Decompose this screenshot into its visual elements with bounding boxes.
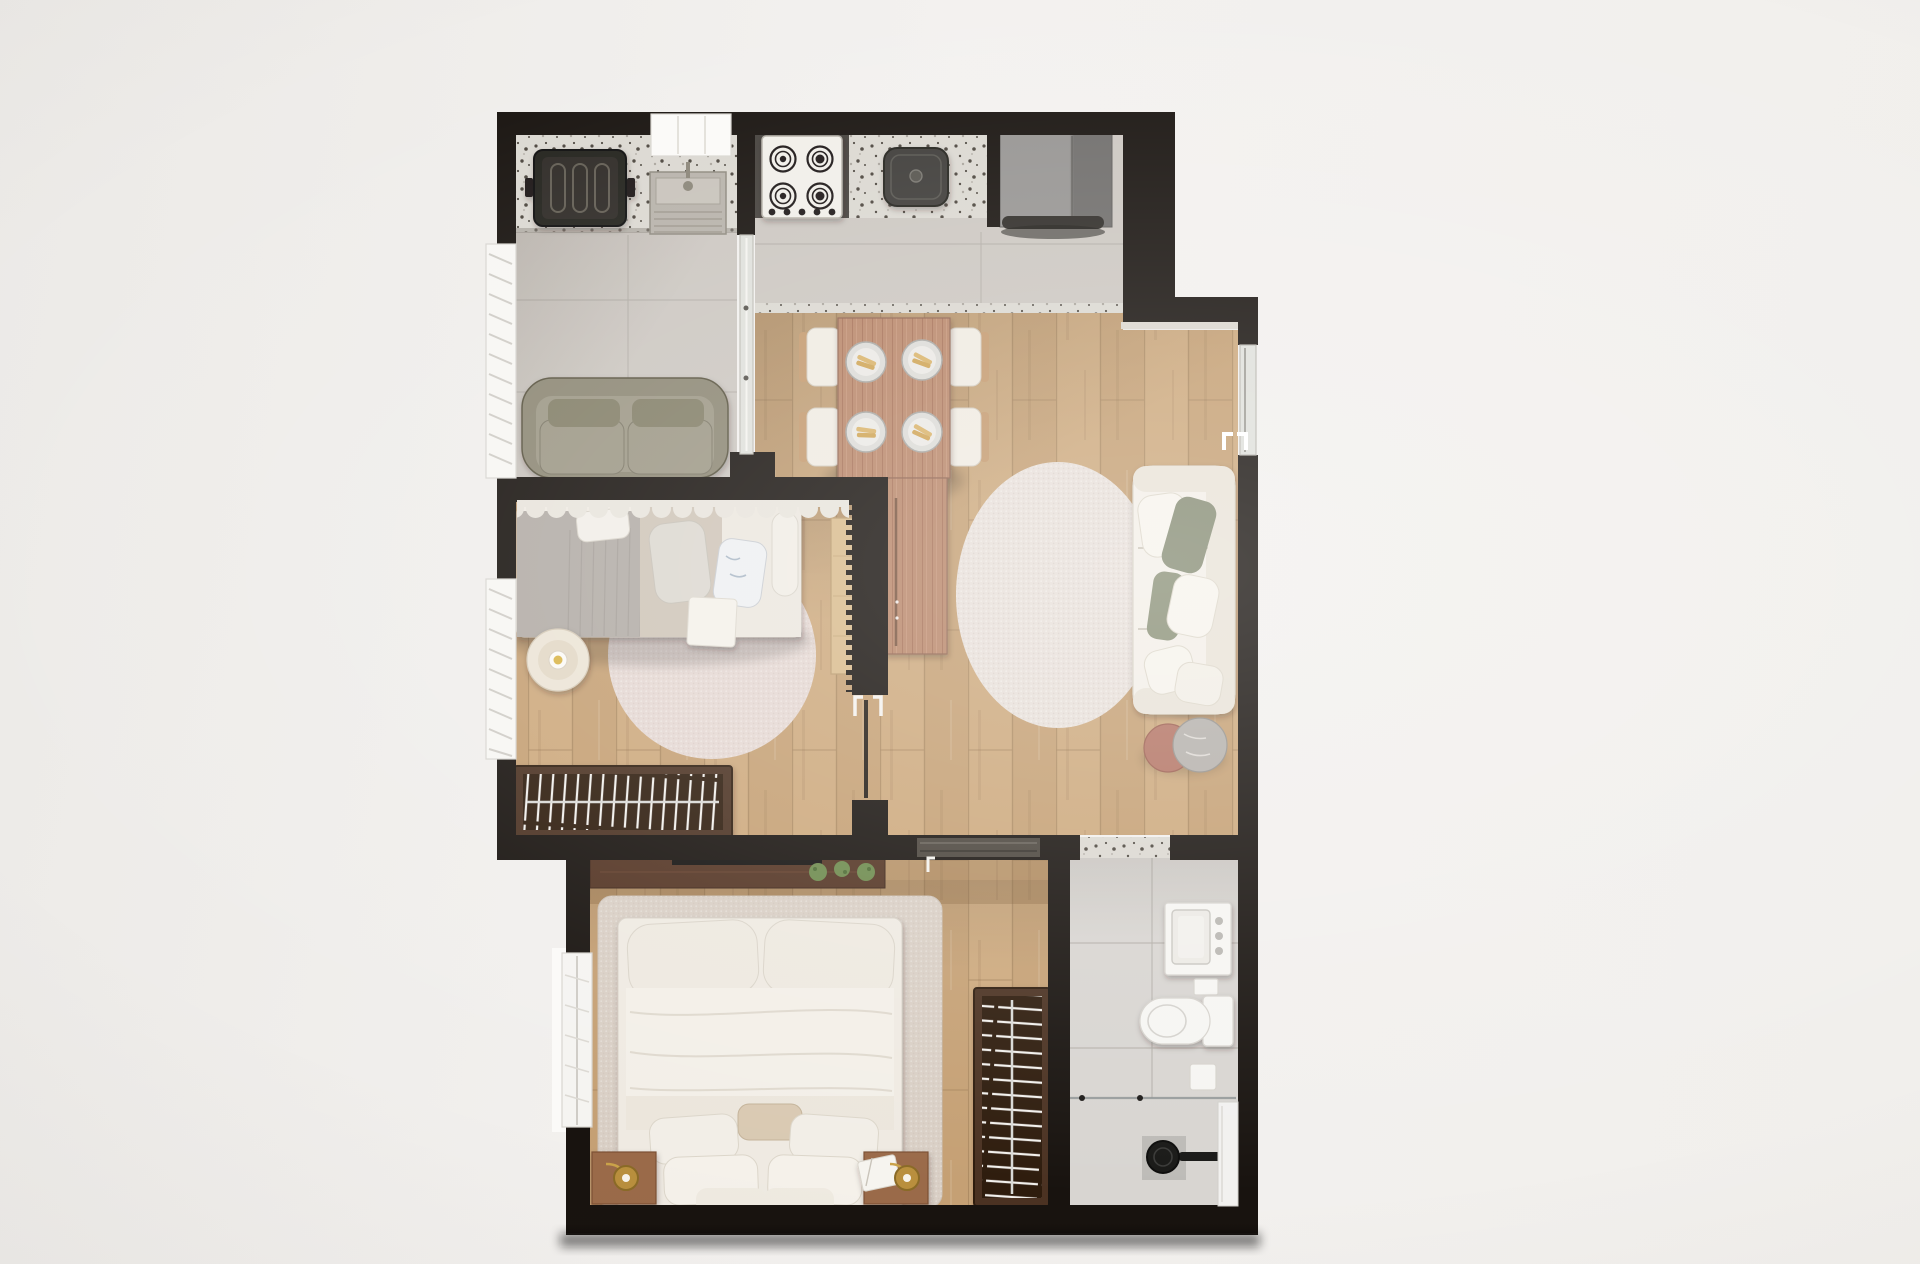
faucet-stem — [686, 162, 690, 178]
toilet — [1140, 996, 1233, 1046]
vanity-sink — [1165, 903, 1231, 975]
shower-shelf-box — [1190, 1064, 1216, 1090]
chair — [799, 328, 841, 386]
tank-handle-right — [627, 178, 635, 197]
duvet-corner-left — [626, 919, 760, 1000]
bedroom1-clothes-rack — [514, 766, 732, 838]
place-setting — [846, 412, 886, 452]
bed-bolster — [772, 512, 798, 596]
granite-threshold — [755, 303, 1123, 313]
chair — [947, 328, 989, 386]
bedroom1-curtain-valance — [517, 500, 849, 518]
chair — [947, 408, 989, 466]
laundry-tank — [525, 150, 635, 226]
bed-pillow — [647, 519, 712, 605]
headboard-shelf — [590, 858, 885, 888]
duvet-corner-right — [762, 919, 896, 1000]
place-setting — [902, 412, 942, 452]
candle-flame — [554, 656, 563, 665]
kitchen-basin — [884, 148, 948, 206]
wall-bedroom1-right — [852, 477, 888, 695]
loveseat-pillow-left — [548, 399, 620, 427]
sofa-pillow-white — [1173, 660, 1225, 707]
shower-arm — [1179, 1152, 1221, 1161]
wall-right-stub — [1238, 297, 1258, 345]
shower-head — [1147, 1141, 1179, 1173]
refrigerator — [1000, 133, 1112, 239]
white-sofa — [1133, 466, 1235, 714]
bedroom1-bed — [517, 506, 801, 647]
bedroom1-side-table — [527, 629, 589, 691]
bathroom-threshold — [1080, 837, 1170, 858]
chair — [799, 408, 841, 466]
olive-loveseat — [522, 378, 728, 478]
bedroom1-louver-window — [486, 579, 516, 759]
plan-drop-shadow — [560, 1233, 1260, 1247]
shower-niche — [1218, 1102, 1238, 1206]
sofa-arm-top — [1133, 466, 1235, 492]
floor-plan-svg — [0, 0, 1920, 1264]
kitchen-window-sill — [651, 114, 731, 156]
cooktop — [762, 136, 842, 218]
place-setting — [902, 340, 942, 380]
nightstand-left — [592, 1152, 656, 1204]
wall-top — [497, 112, 1175, 135]
wall-bottom — [566, 1205, 1258, 1235]
console-extension — [885, 478, 947, 654]
wall-fridge-divider — [987, 135, 1000, 227]
wall-bedroom1-top — [497, 477, 888, 502]
tank-handle-left — [525, 178, 533, 197]
living-rug — [956, 462, 1160, 728]
wall-kitchen-right — [1123, 112, 1175, 323]
faucet-head — [683, 181, 693, 191]
paper-box — [1194, 979, 1218, 995]
service-louver-window — [486, 244, 516, 478]
wall-bathroom-divider — [1048, 858, 1070, 1208]
bedroom2-balcony-window — [552, 948, 592, 1132]
bed-towel — [687, 597, 737, 647]
floor-plan-canvas — [0, 0, 1920, 1264]
glass-partition — [740, 235, 753, 454]
nightstand-right — [857, 1152, 928, 1204]
place-setting — [846, 342, 886, 382]
utility-sink — [650, 162, 726, 234]
wall-bath-top — [1170, 835, 1258, 860]
bedroom2-clothes-rack — [974, 988, 1050, 1206]
wall-service-divider — [737, 135, 755, 235]
wall-sill-line — [1121, 322, 1240, 329]
loveseat-pillow-right — [632, 399, 704, 427]
wall-bedroom1-right-stub — [852, 800, 888, 840]
marble-side-table — [1173, 718, 1227, 772]
refrigerator-shadow — [1001, 225, 1105, 239]
wall-top-right — [1123, 297, 1258, 323]
